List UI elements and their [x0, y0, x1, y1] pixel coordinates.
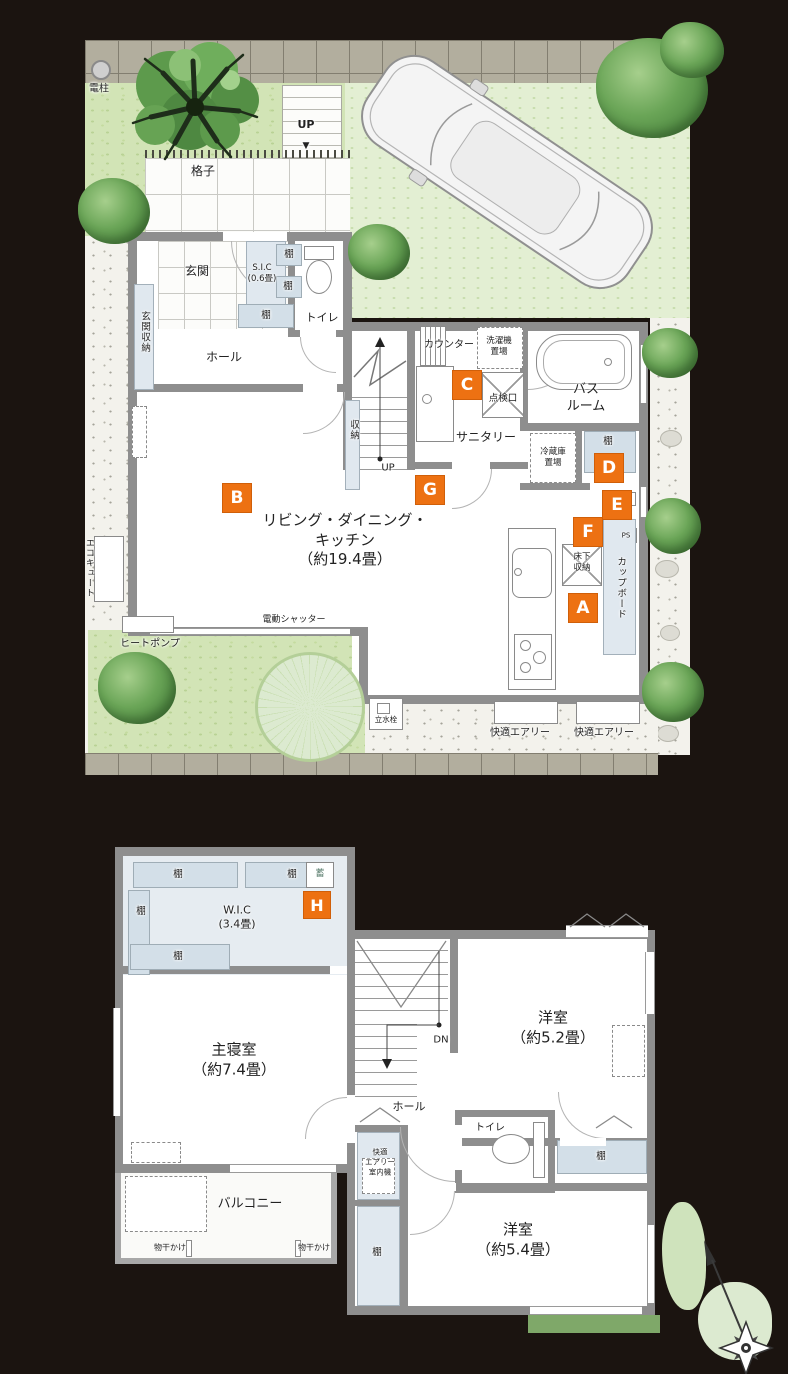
- side-window: [640, 487, 647, 517]
- shelf-label: 棚: [136, 906, 146, 918]
- casement-window-icon: [568, 912, 646, 928]
- shelf: [133, 862, 238, 888]
- staircase-direction: [352, 331, 408, 471]
- vanity-unit: [416, 366, 454, 442]
- toilet-bowl: [492, 1134, 530, 1164]
- yoshitsu52-door-opening: [560, 1138, 606, 1146]
- airy-indoor-label: 快適エアリー室内機: [365, 1147, 395, 1176]
- sic-label: S.I.C(0.6畳): [248, 263, 277, 285]
- south-grass-strip: [528, 1315, 660, 1333]
- heat-pump-label: ヒートポンプ: [120, 638, 180, 651]
- pebble: [660, 625, 680, 641]
- toilet-label: トイレ: [306, 311, 339, 325]
- toilet-tank: [533, 1122, 545, 1178]
- sidewalk-tiles-south: [85, 753, 658, 775]
- marker-g: G: [415, 475, 445, 505]
- wall: [520, 483, 590, 490]
- kitchen-faucet: [514, 568, 522, 576]
- bath-drain: [604, 358, 612, 366]
- ps-label: PS: [622, 531, 631, 540]
- marker-b: B: [222, 483, 252, 513]
- large-tree: [115, 25, 275, 185]
- cupboard-label: カップボード: [614, 557, 626, 620]
- staircase-direction: [355, 939, 448, 1089]
- tree: [78, 178, 150, 244]
- airy-label: 快適エアリー: [490, 727, 550, 740]
- laundry-label: 物干かけ: [154, 1243, 186, 1253]
- tree: [642, 328, 698, 378]
- wall: [355, 1125, 402, 1132]
- shelf-label: 棚: [261, 310, 271, 322]
- shutter-label: 電動シャッター: [262, 615, 325, 627]
- hall-ldk-opening: [303, 384, 337, 392]
- stairs-dn-label: DN: [433, 1034, 448, 1047]
- fridge-space-label: 冷蔵庫置場: [540, 447, 566, 469]
- marker-a: A: [568, 593, 598, 623]
- wall: [575, 431, 582, 486]
- balcony-rail: [331, 1173, 337, 1264]
- shelf-label: 棚: [372, 1247, 382, 1259]
- wic-door-opening: [330, 966, 347, 974]
- entrance-door-opening: [223, 232, 287, 241]
- laundry-pole-bracket: [186, 1240, 192, 1257]
- battery-label: 蓄: [315, 869, 324, 881]
- marker-f: F: [573, 517, 603, 547]
- tree: [348, 224, 410, 280]
- counter-label: カウンター: [424, 339, 474, 352]
- bedroom-window: [113, 1008, 121, 1116]
- approach-down-arrow: ▼: [303, 141, 310, 153]
- wall: [128, 384, 303, 392]
- tree: [645, 498, 701, 554]
- floor-plan-image: 電柱 格子 UP ▼ 玄関 S.I.C(0.6畳) 棚 棚 棚 トイレ 玄関収納…: [0, 0, 788, 1374]
- wall: [490, 462, 528, 469]
- wall: [548, 1110, 555, 1193]
- sanitary-label: サニタリー: [456, 430, 516, 446]
- shelf-label: 棚: [173, 869, 183, 881]
- shelf-label: 棚: [284, 249, 294, 261]
- closet-outline: [612, 1025, 645, 1077]
- shutter-window: [150, 628, 350, 635]
- entrance-storage-label: 玄関収納: [138, 311, 150, 353]
- wall: [407, 331, 415, 470]
- yoshitsu54-door-opening: [408, 1183, 456, 1191]
- tv-board-outline: [132, 406, 147, 458]
- wic-label: W.I.C(3.4畳): [218, 904, 255, 933]
- compass-rose-icon: [690, 1236, 785, 1374]
- stair-storage-label: 収納: [347, 420, 359, 441]
- marker-e: E: [602, 490, 632, 520]
- hall-label: ホール: [206, 350, 242, 366]
- marker-h: H: [303, 891, 331, 919]
- bedroom-corner-outline: [131, 1142, 181, 1163]
- ecocute-unit: [94, 536, 124, 602]
- burner: [520, 640, 531, 651]
- burner: [520, 662, 531, 673]
- shelf-label: 棚: [283, 281, 293, 293]
- airy-label: 快適エアリー: [574, 727, 634, 740]
- yoshitsu54-side-window: [647, 1225, 655, 1303]
- wall: [407, 462, 452, 469]
- marker-c: C: [452, 370, 482, 400]
- round-hedge: [255, 652, 365, 762]
- tree: [642, 662, 704, 722]
- balcony-window: [230, 1164, 336, 1173]
- approach-up-label: UP: [298, 118, 315, 132]
- yoshitsu54-south-window: [530, 1306, 642, 1315]
- yoshitsu52-label: 洋室（約5.2畳）: [511, 1009, 595, 1048]
- shelf-label: 棚: [603, 436, 613, 448]
- balcony-label: バルコニー: [218, 1197, 283, 1214]
- toilet-bowl: [306, 260, 332, 294]
- pebble: [655, 560, 679, 578]
- shelf-label: 棚: [173, 951, 183, 963]
- balcony-rail: [115, 1258, 337, 1264]
- wall: [347, 1165, 355, 1315]
- inspection-hatch-label: 点検口: [489, 393, 518, 405]
- ldk-label: リビング・ダイニング・キッチン（約19.4畳）: [262, 511, 427, 570]
- burner: [533, 651, 546, 664]
- utility-pole-label: 電柱: [89, 83, 109, 96]
- toilet2f-label: トイレ: [475, 1122, 505, 1135]
- pebble: [657, 725, 679, 742]
- wall: [455, 1110, 555, 1117]
- laundry-label: 物干かけ: [298, 1243, 330, 1253]
- bedroom-label: 主寝室（約7.4畳）: [192, 1041, 276, 1080]
- wall: [520, 423, 648, 431]
- pebble: [660, 430, 682, 447]
- bathroom-label: バスルーム: [567, 382, 606, 416]
- bathtub-inner: [543, 340, 625, 384]
- shelf-label: 棚: [287, 869, 297, 881]
- wall: [288, 330, 300, 337]
- balcony-rail: [115, 1173, 121, 1264]
- airy-outdoor-unit: [494, 701, 558, 724]
- wall: [450, 939, 458, 1053]
- utility-pole-icon: [91, 60, 111, 80]
- stair-storage: [345, 400, 360, 490]
- bedroom-door-opening: [347, 1095, 355, 1143]
- wall: [115, 847, 355, 856]
- ecocute-label: エコキュート: [82, 538, 94, 598]
- water-faucet-inner: [377, 703, 390, 714]
- hall2f-label: ホール: [393, 1100, 426, 1114]
- washer-space-label: 洗濯機置場: [486, 336, 512, 358]
- shelf-label: 棚: [596, 1151, 606, 1163]
- heat-pump-unit: [122, 616, 174, 633]
- airy-outdoor-unit: [576, 701, 640, 724]
- genkan-label: 玄関: [185, 264, 209, 280]
- stairs-up-label: UP: [381, 462, 394, 475]
- underfloor-storage-label: 床下収納: [573, 552, 590, 574]
- tree: [98, 652, 176, 724]
- toilet-tank: [304, 246, 334, 260]
- marker-d: D: [594, 453, 624, 483]
- vanity-sink: [422, 394, 432, 404]
- toilet2f-door-opening: [455, 1125, 462, 1170]
- tree: [660, 22, 724, 78]
- yoshitsu52-side-window: [645, 952, 655, 1014]
- water-faucet-label: 立水栓: [375, 715, 398, 725]
- balcony-slope-outline: [125, 1176, 207, 1232]
- yoshitsu54-label: 洋室（約5.4畳）: [476, 1221, 560, 1260]
